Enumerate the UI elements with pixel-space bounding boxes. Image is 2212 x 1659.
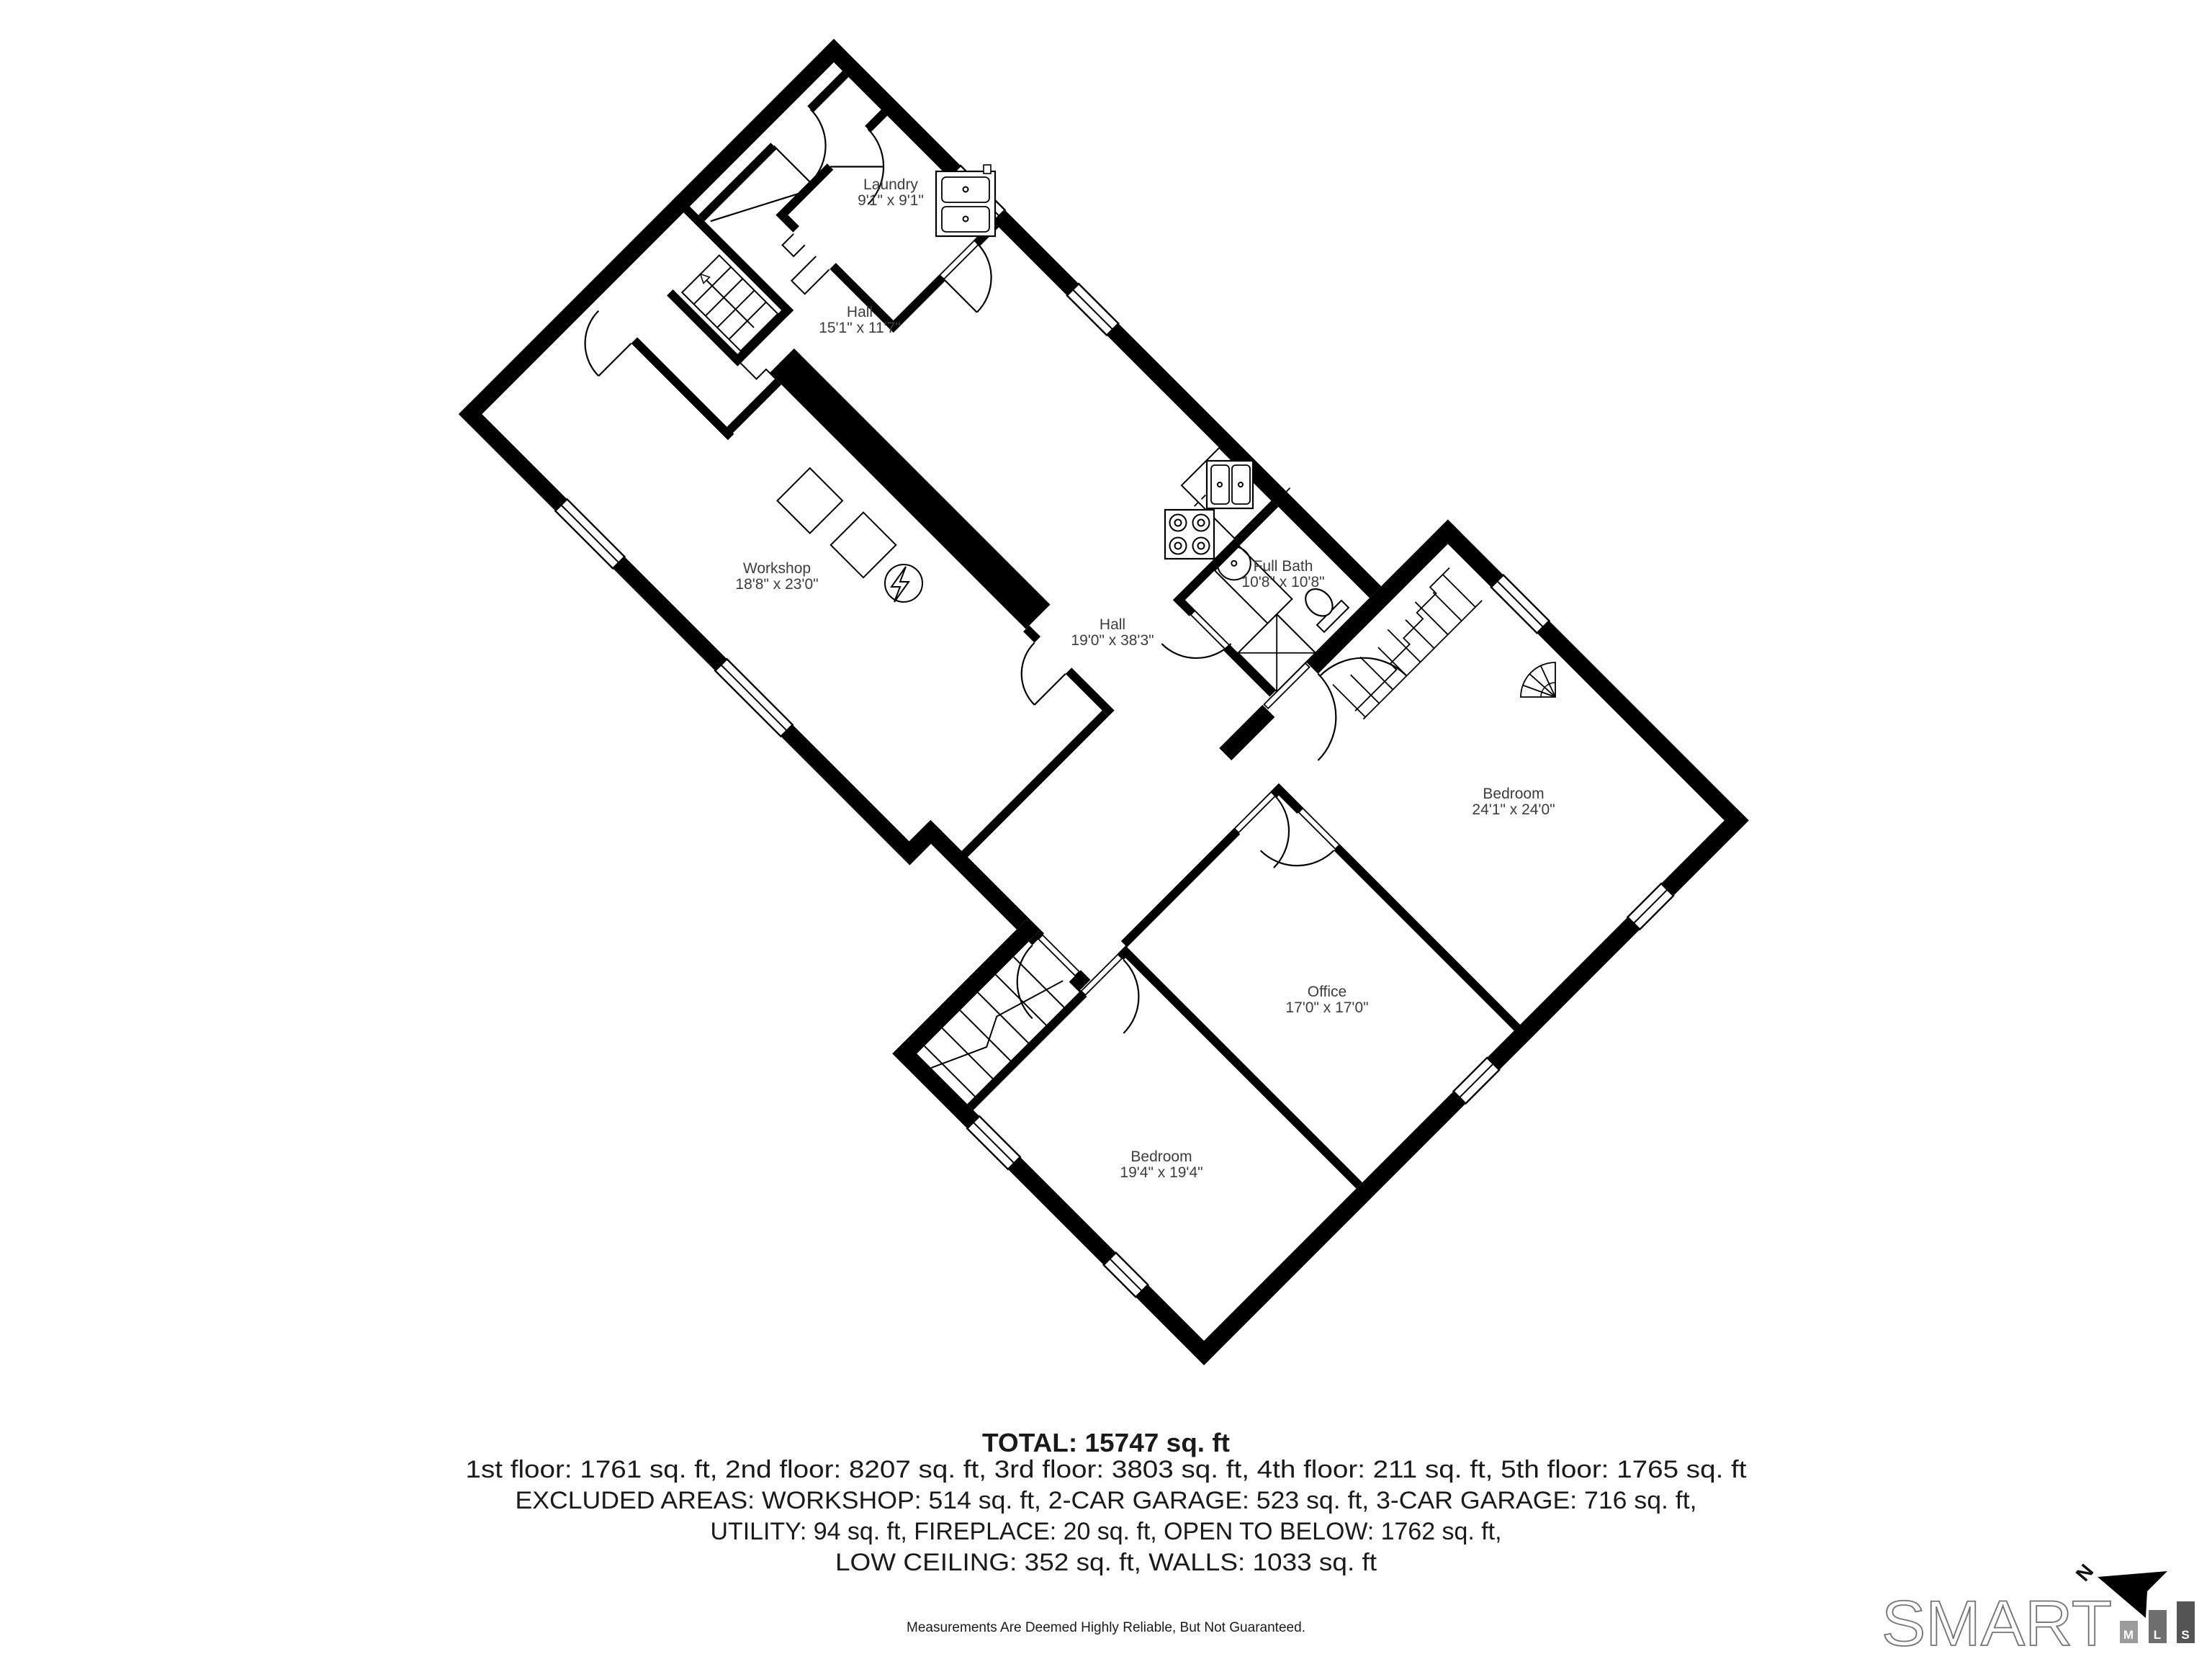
svg-text:19'0" x 38'3": 19'0" x 38'3" <box>1071 632 1154 649</box>
svg-text:Office: Office <box>1308 984 1346 1000</box>
svg-text:18'8" x 23'0": 18'8" x 23'0" <box>735 576 818 593</box>
svg-text:Measurements Are Deemed Highly: Measurements Are Deemed Highly Reliable,… <box>907 1620 1305 1635</box>
svg-text:TOTAL: 15747 sq. ft: TOTAL: 15747 sq. ft <box>982 1428 1230 1457</box>
svg-text:M: M <box>2123 1628 2134 1642</box>
svg-text:9'1" x 9'1": 9'1" x 9'1" <box>858 192 924 209</box>
svg-text:S: S <box>2181 1628 2189 1642</box>
svg-text:15'1" x 11'7": 15'1" x 11'7" <box>819 320 901 336</box>
svg-text:Bedroom: Bedroom <box>1483 786 1544 802</box>
svg-text:Hall: Hall <box>847 304 873 320</box>
svg-text:SMART: SMART <box>1881 1587 2112 1659</box>
svg-text:24'1" x 24'0": 24'1" x 24'0" <box>1472 801 1555 818</box>
svg-text:10'8" x 10'8": 10'8" x 10'8" <box>1241 574 1324 590</box>
svg-text:EXCLUDED AREAS: WORKSHOP: 514: EXCLUDED AREAS: WORKSHOP: 514 sq. ft, 2-… <box>516 1487 1697 1514</box>
svg-text:L: L <box>2154 1628 2161 1642</box>
svg-text:17'0" x 17'0": 17'0" x 17'0" <box>1285 999 1368 1016</box>
svg-text:Hall: Hall <box>1100 616 1125 633</box>
svg-text:19'4" x 19'4": 19'4" x 19'4" <box>1120 1164 1202 1181</box>
svg-text:Full Bath: Full Bath <box>1254 558 1313 575</box>
svg-text:Workshop: Workshop <box>743 560 811 577</box>
svg-text:1st floor: 1761 sq. ft, 2nd fl: 1st floor: 1761 sq. ft, 2nd floor: 8207 … <box>466 1456 1748 1483</box>
svg-text:Bedroom: Bedroom <box>1130 1148 1192 1165</box>
svg-text:N: N <box>2072 1560 2098 1585</box>
svg-text:LOW CEILING: 352 sq. ft, WALLS: LOW CEILING: 352 sq. ft, WALLS: 1033 sq.… <box>835 1549 1377 1576</box>
svg-text:Laundry: Laundry <box>863 176 918 193</box>
svg-text:UTILITY: 94 sq. ft, FIREPLACE:: UTILITY: 94 sq. ft, FIREPLACE: 20 sq. ft… <box>711 1518 1502 1545</box>
